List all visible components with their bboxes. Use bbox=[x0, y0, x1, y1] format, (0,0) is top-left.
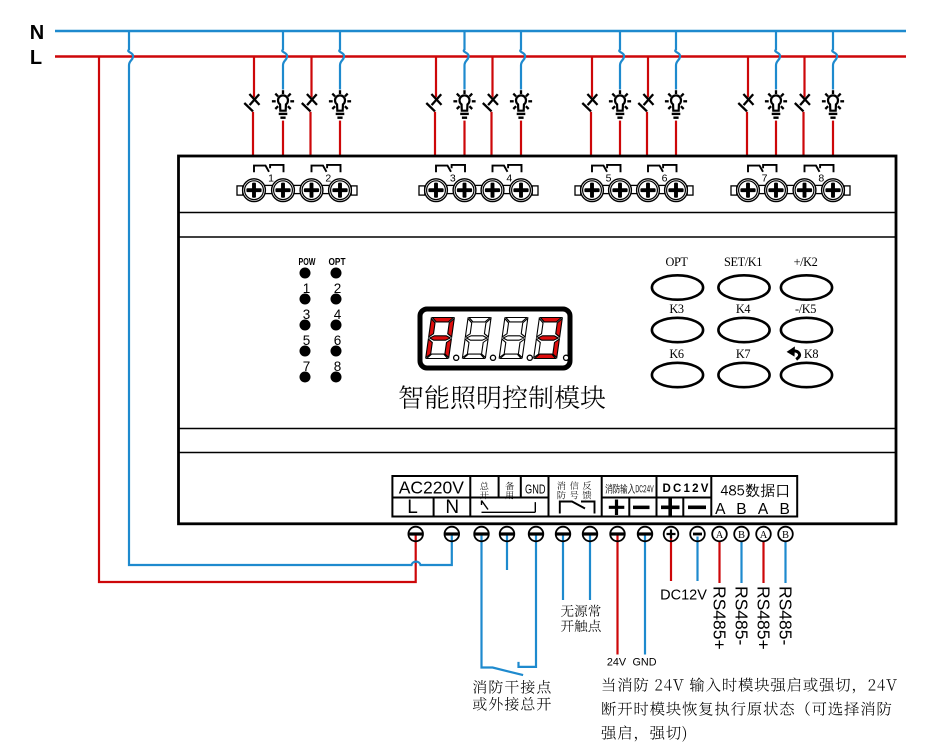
svg-text:24V: 24V bbox=[607, 657, 627, 669]
svg-text:2: 2 bbox=[325, 173, 331, 185]
svg-text:K8: K8 bbox=[804, 347, 818, 361]
svg-text:RS485-: RS485- bbox=[731, 586, 751, 646]
svg-text:N: N bbox=[30, 22, 44, 44]
svg-text:5: 5 bbox=[303, 333, 311, 348]
svg-text:B: B bbox=[738, 530, 745, 541]
svg-text:7: 7 bbox=[303, 359, 311, 374]
svg-text:3: 3 bbox=[450, 173, 456, 185]
svg-text:A: A bbox=[760, 530, 768, 541]
svg-text:N: N bbox=[445, 497, 459, 518]
svg-text:A: A bbox=[758, 501, 769, 518]
svg-text:-/K5: -/K5 bbox=[795, 302, 816, 316]
svg-text:5: 5 bbox=[606, 173, 612, 185]
svg-text:3: 3 bbox=[303, 307, 311, 322]
svg-text:B: B bbox=[780, 501, 790, 518]
svg-text:A: A bbox=[715, 501, 726, 518]
svg-text:RS485+: RS485+ bbox=[753, 586, 773, 650]
svg-text:AC220V: AC220V bbox=[399, 478, 465, 498]
svg-text:GND: GND bbox=[525, 483, 546, 497]
svg-text:RS485+: RS485+ bbox=[709, 586, 729, 650]
svg-text:B: B bbox=[736, 501, 746, 518]
svg-text:6: 6 bbox=[662, 173, 668, 185]
svg-text:POW: POW bbox=[299, 257, 316, 268]
svg-text:DC12V: DC12V bbox=[663, 483, 711, 495]
svg-text:4: 4 bbox=[334, 307, 342, 322]
svg-text:1: 1 bbox=[268, 173, 274, 185]
svg-text:OPT: OPT bbox=[329, 257, 346, 268]
svg-text:SET/K1: SET/K1 bbox=[724, 255, 762, 269]
svg-text:A: A bbox=[716, 530, 724, 541]
svg-text:GND: GND bbox=[633, 657, 657, 669]
svg-text:8: 8 bbox=[818, 173, 824, 185]
svg-text:2: 2 bbox=[334, 281, 342, 296]
svg-text:L: L bbox=[407, 497, 418, 518]
svg-text:4: 4 bbox=[506, 173, 512, 185]
svg-text:OPT: OPT bbox=[665, 255, 688, 269]
svg-text:K3: K3 bbox=[669, 302, 683, 316]
svg-text:L: L bbox=[30, 47, 42, 69]
svg-text:8: 8 bbox=[334, 359, 342, 374]
svg-text:DC12V: DC12V bbox=[660, 588, 707, 604]
svg-text:7: 7 bbox=[762, 173, 768, 185]
svg-text:K7: K7 bbox=[736, 347, 750, 361]
svg-text:K4: K4 bbox=[736, 302, 750, 316]
svg-text:K6: K6 bbox=[669, 347, 683, 361]
svg-text:6: 6 bbox=[334, 333, 342, 348]
svg-text:+/K2: +/K2 bbox=[794, 255, 818, 269]
svg-text:1: 1 bbox=[303, 281, 311, 296]
svg-text:B: B bbox=[782, 530, 789, 541]
svg-text:RS485-: RS485- bbox=[775, 586, 795, 646]
